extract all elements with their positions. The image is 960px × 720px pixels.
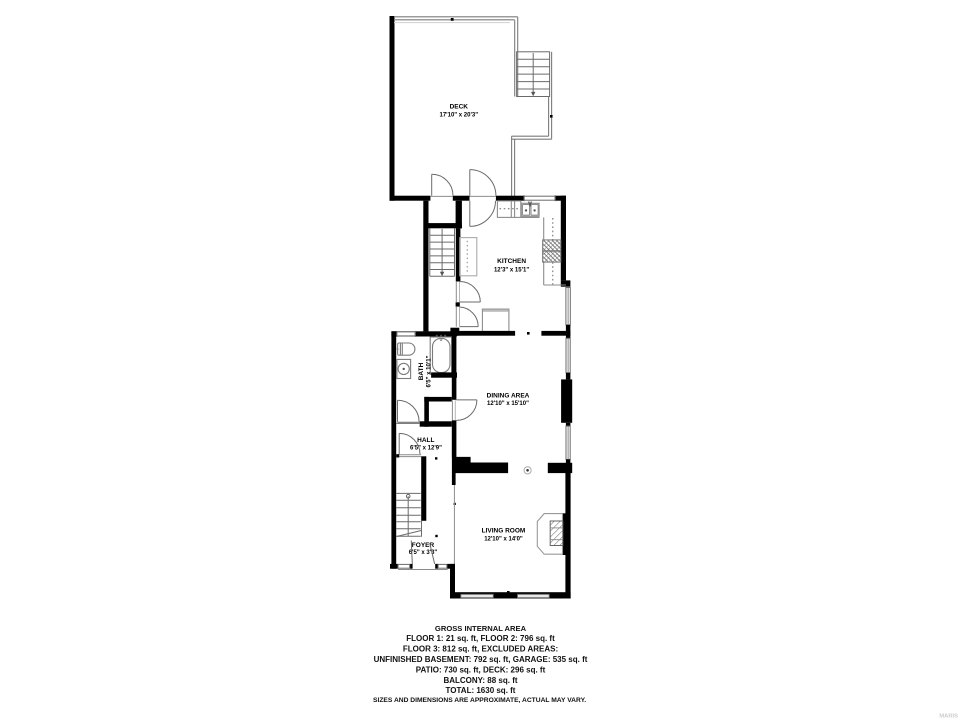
svg-text:12'3" x 15'1": 12'3" x 15'1" — [494, 267, 529, 273]
svg-text:6'5" x 3'3": 6'5" x 3'3" — [409, 550, 438, 556]
svg-text:SIZES AND DIMENSIONS ARE APPRO: SIZES AND DIMENSIONS ARE APPROXIMATE, AC… — [373, 697, 586, 704]
svg-text:BATH: BATH — [418, 362, 425, 380]
svg-text:MARIS: MARIS — [939, 714, 958, 720]
svg-text:12'10" x 14'0": 12'10" x 14'0" — [484, 536, 523, 542]
svg-text:17'10" x 20'3": 17'10" x 20'3" — [440, 112, 479, 118]
svg-text:6'5" x 12'9": 6'5" x 12'9" — [410, 446, 442, 452]
svg-text:DINING AREA: DINING AREA — [487, 393, 530, 400]
svg-text:HALL: HALL — [417, 437, 434, 444]
svg-text:BALCONY: 88 sq. ft: BALCONY: 88 sq. ft — [443, 676, 517, 685]
svg-text:FLOOR 3: 812 sq. ft, EXCLUDED: FLOOR 3: 812 sq. ft, EXCLUDED AREAS: — [403, 645, 558, 654]
svg-text:FLOOR 1: 21 sq. ft, FLOOR 2: 7: FLOOR 1: 21 sq. ft, FLOOR 2: 796 sq. ft — [406, 634, 555, 643]
svg-text:LIVING ROOM: LIVING ROOM — [482, 528, 526, 535]
svg-text:UNFINISHED BASEMENT: 792 sq. f: UNFINISHED BASEMENT: 792 sq. ft, GARAGE:… — [374, 655, 588, 664]
svg-text:GROSS INTERNAL AREA: GROSS INTERNAL AREA — [435, 624, 527, 633]
svg-text:6'5" x 10'1": 6'5" x 10'1" — [426, 355, 432, 387]
svg-text:TOTAL: 1630 sq. ft: TOTAL: 1630 sq. ft — [446, 686, 516, 695]
svg-text:KITCHEN: KITCHEN — [497, 258, 526, 265]
svg-text:12'10" x 15'10": 12'10" x 15'10" — [487, 401, 529, 407]
svg-text:PATIO: 730 sq. ft, DECK: 296 s: PATIO: 730 sq. ft, DECK: 296 sq. ft — [416, 665, 546, 674]
svg-text:DECK: DECK — [450, 104, 469, 111]
